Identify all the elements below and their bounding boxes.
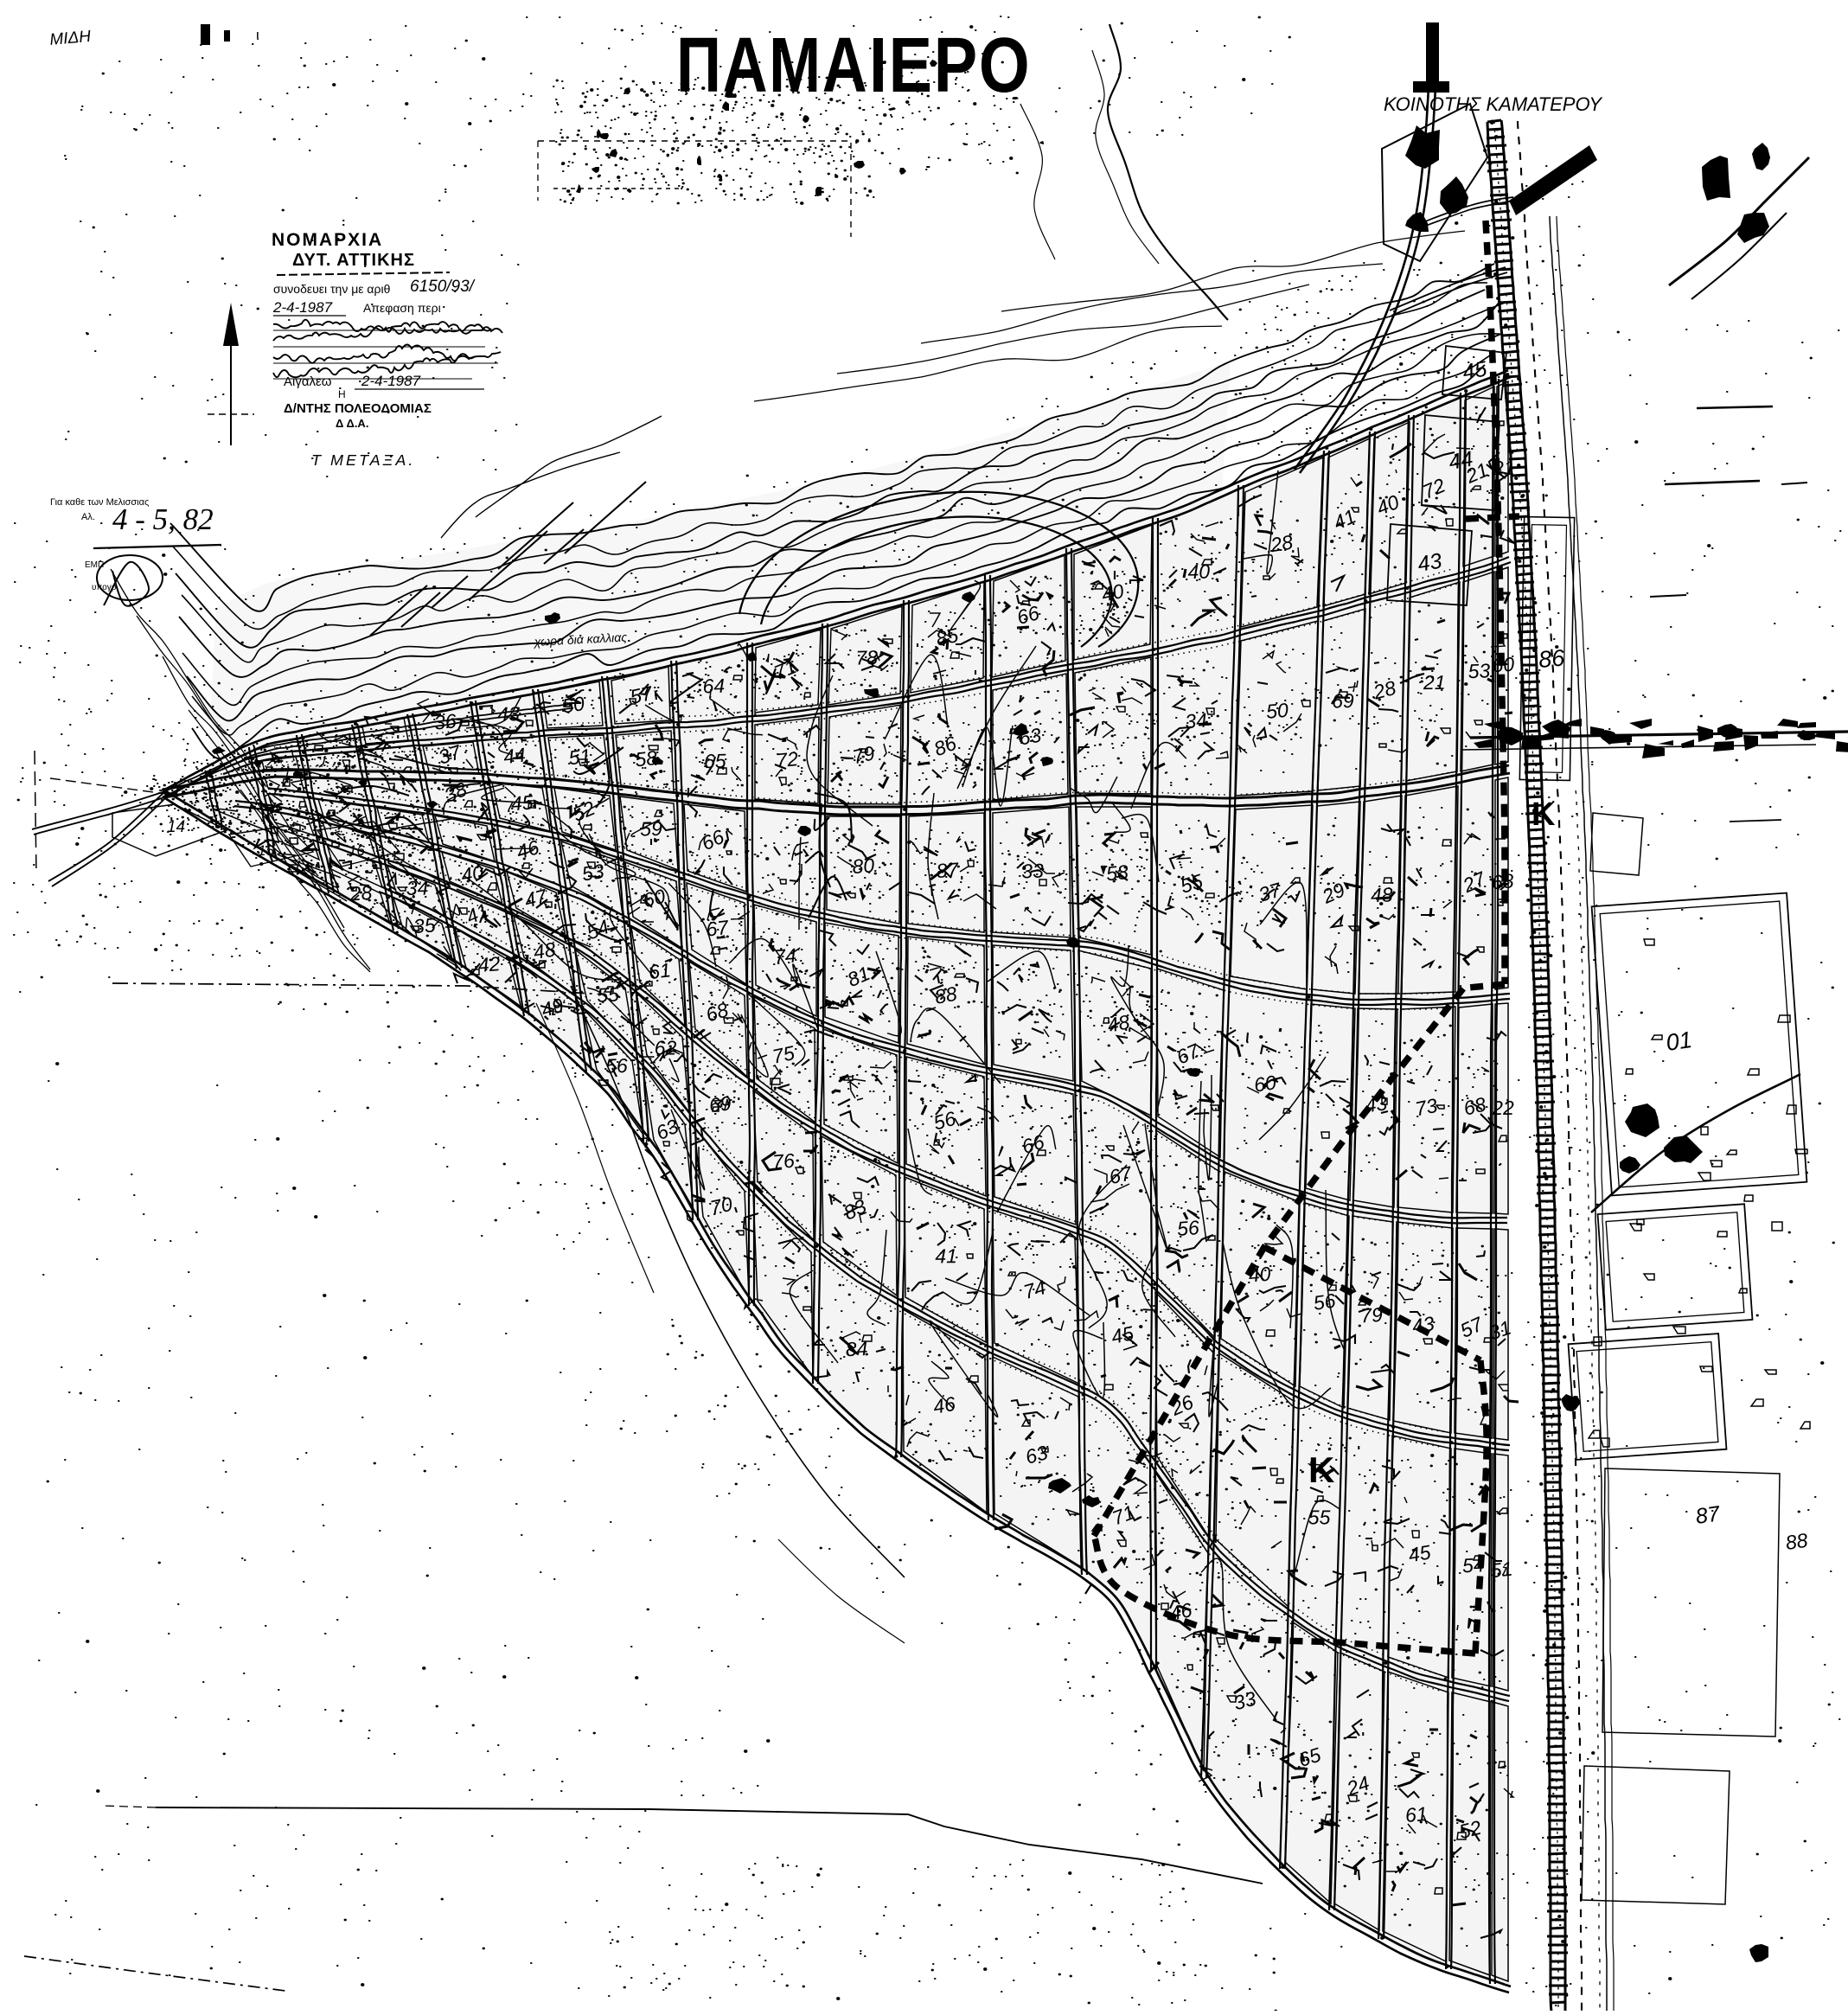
svg-text:61: 61 xyxy=(1404,1802,1429,1826)
svg-text:54: 54 xyxy=(1461,1553,1485,1577)
svg-text:80: 80 xyxy=(852,854,876,878)
svg-text:43: 43 xyxy=(497,702,521,726)
svg-text:50: 50 xyxy=(560,692,585,718)
svg-text:88: 88 xyxy=(933,982,959,1008)
svg-text:συνοδευει την με αριθ: συνοδευει την με αριθ xyxy=(273,282,391,296)
svg-text:72: 72 xyxy=(775,747,799,771)
svg-text:34: 34 xyxy=(406,877,429,899)
svg-text:2-4-1987: 2-4-1987 xyxy=(361,373,421,389)
svg-text:45: 45 xyxy=(510,790,534,815)
svg-text:Τ ΜΕΤΑΞΑ.: Τ ΜΕΤΑΞΑ. xyxy=(311,451,415,469)
svg-text:01: 01 xyxy=(1665,1027,1694,1056)
svg-text:64: 64 xyxy=(702,675,726,698)
svg-text:40: 40 xyxy=(1187,560,1211,584)
svg-text:53: 53 xyxy=(580,860,606,886)
svg-text:45: 45 xyxy=(1407,1540,1433,1566)
svg-text:44: 44 xyxy=(1447,447,1474,475)
svg-text:Αλ.: Αλ. xyxy=(81,512,95,522)
svg-text:36: 36 xyxy=(433,709,457,733)
svg-text:Αιγαλεω: Αιγαλεω xyxy=(284,374,332,389)
svg-text:59: 59 xyxy=(640,817,662,841)
svg-text:48: 48 xyxy=(1105,1010,1131,1036)
svg-text:ΕΜΠ: ΕΜΠ xyxy=(85,560,104,570)
svg-text:21: 21 xyxy=(1492,457,1515,480)
svg-text:87: 87 xyxy=(1694,1501,1723,1529)
svg-text:43: 43 xyxy=(1410,1312,1436,1338)
svg-text:56: 56 xyxy=(1312,1289,1337,1315)
svg-text:ΜΙΔΗ: ΜΙΔΗ xyxy=(49,28,93,49)
svg-text:33: 33 xyxy=(1021,860,1045,883)
svg-text:45: 45 xyxy=(1461,356,1488,384)
svg-text:ΚΟΙΝΟΤΗΣ ΚΑΜΑΤΕΡΟΥ: ΚΟΙΝΟΤΗΣ ΚΑΜΑΤΕΡΟΥ xyxy=(1384,93,1602,115)
svg-text:56: 56 xyxy=(605,1054,628,1078)
svg-text:70: 70 xyxy=(708,1193,735,1219)
svg-text:35: 35 xyxy=(412,913,437,937)
svg-text:44: 44 xyxy=(502,743,527,768)
svg-text:76: 76 xyxy=(771,1149,796,1174)
svg-text:40: 40 xyxy=(459,860,485,886)
svg-text:ΝΟΜΑΡΧΙΑ: ΝΟΜΑΡΧΙΑ xyxy=(272,230,383,250)
svg-text:14: 14 xyxy=(167,818,185,836)
svg-text:73: 73 xyxy=(1413,1094,1440,1121)
svg-text:48: 48 xyxy=(532,937,558,963)
svg-text:28: 28 xyxy=(1268,531,1295,557)
svg-text:87: 87 xyxy=(936,858,961,882)
svg-text:22: 22 xyxy=(1491,1097,1514,1119)
svg-text:88: 88 xyxy=(1784,1529,1809,1554)
svg-text:2-4-1987: 2-4-1987 xyxy=(272,299,333,316)
svg-text:84: 84 xyxy=(845,1337,868,1360)
svg-text:41: 41 xyxy=(935,1244,957,1267)
svg-text:ι: ι xyxy=(256,27,259,43)
svg-text:48: 48 xyxy=(1370,883,1393,906)
svg-text:50: 50 xyxy=(1265,699,1289,723)
svg-text:43: 43 xyxy=(1416,548,1443,576)
svg-text:Απεφαση περι: Απεφαση περι xyxy=(363,301,441,315)
svg-text:60: 60 xyxy=(1492,653,1515,676)
svg-text:51: 51 xyxy=(1489,1558,1513,1583)
svg-text:6150/93/: 6150/93/ xyxy=(410,278,476,296)
svg-text:79: 79 xyxy=(1359,1303,1384,1327)
svg-text:K: K xyxy=(1308,1449,1334,1490)
svg-text:15: 15 xyxy=(258,842,274,859)
svg-text:Δ/ΝΤΗΣ ΠΟΛΕΟΔΟΜΙΑΣ: Δ/ΝΤΗΣ ΠΟΛΕΟΔΟΜΙΑΣ xyxy=(284,401,432,416)
svg-text:K: K xyxy=(1531,796,1556,833)
svg-text:56: 56 xyxy=(1176,1216,1200,1240)
svg-text:60: 60 xyxy=(1252,1071,1277,1096)
svg-text:62: 62 xyxy=(655,1036,677,1059)
svg-text:68: 68 xyxy=(1491,869,1515,893)
svg-text:69: 69 xyxy=(708,1091,733,1116)
svg-text:55: 55 xyxy=(1308,1506,1331,1528)
svg-text:63: 63 xyxy=(1017,723,1043,749)
svg-text:Δ Δ.Α.: Δ Δ.Α. xyxy=(336,417,368,430)
svg-text:Η: Η xyxy=(338,388,346,400)
svg-text:69: 69 xyxy=(1332,689,1355,713)
svg-text:16: 16 xyxy=(348,842,365,859)
svg-text:61: 61 xyxy=(648,958,673,983)
svg-text:51: 51 xyxy=(567,745,591,770)
svg-text:86: 86 xyxy=(1538,644,1567,673)
svg-text:43: 43 xyxy=(1364,1091,1389,1116)
svg-text:58: 58 xyxy=(1105,860,1129,885)
svg-text:74: 74 xyxy=(773,944,797,968)
svg-text:21: 21 xyxy=(1423,671,1446,694)
svg-text:ΙΕΡΟ: ΙΕΡΟ xyxy=(869,22,1031,109)
svg-text:78: 78 xyxy=(855,646,878,669)
svg-text:46: 46 xyxy=(931,1392,957,1418)
svg-text:34: 34 xyxy=(1184,708,1208,732)
svg-text:Για καθε των Μελισσιας: Για καθε των Μελισσιας xyxy=(50,497,149,508)
svg-text:65: 65 xyxy=(704,750,726,773)
svg-text:υπογρ: υπογρ xyxy=(92,583,117,592)
svg-text:ΔΥΤ. ΑΤΤΙΚΗΣ: ΔΥΤ. ΑΤΤΙΚΗΣ xyxy=(292,251,415,270)
svg-text:40: 40 xyxy=(1248,1263,1272,1287)
svg-text:75: 75 xyxy=(771,1041,797,1068)
svg-text:55: 55 xyxy=(596,982,619,1006)
svg-text:42: 42 xyxy=(477,952,502,976)
svg-text:28: 28 xyxy=(348,881,374,905)
svg-text:ΠΑΜΑ: ΠΑΜΑ xyxy=(676,22,868,108)
svg-text:58: 58 xyxy=(634,746,659,771)
svg-text:53: 53 xyxy=(1468,659,1491,682)
svg-text:67: 67 xyxy=(705,916,731,941)
